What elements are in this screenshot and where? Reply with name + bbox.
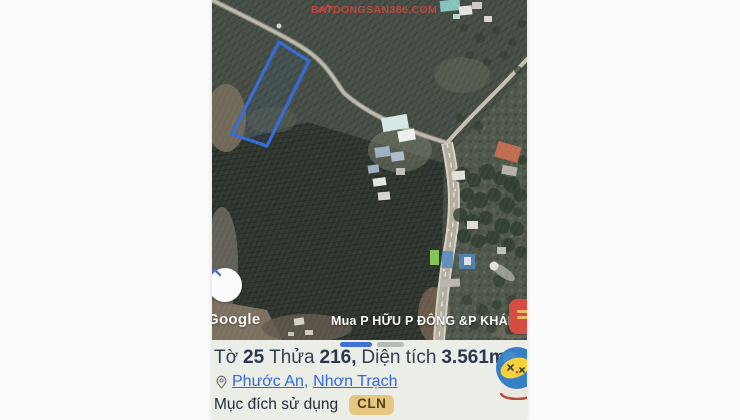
land-use-label: Mục đích sử dụng: [214, 395, 338, 414]
ward-link[interactable]: Phước An: [232, 372, 304, 392]
location-line: Phước An,Nhơn Trạch: [214, 372, 527, 392]
parcel-label: Thửa: [269, 347, 314, 368]
red-action-icon[interactable]: [509, 299, 527, 334]
house-icon: [317, 4, 333, 13]
parcel-title: Tờ25Thửa216,Diện tích3.561m²: [214, 347, 527, 370]
photo-background: BATDONGSAN386.COM Mua P HỮU P ĐÔNG &P KH…: [0, 0, 740, 420]
google-logo: Google: [212, 311, 260, 328]
sticker-ball-icon: [493, 344, 527, 400]
watermark: BATDONGSAN386.COM: [311, 4, 437, 16]
district-link[interactable]: Nhơn Trạch: [313, 372, 397, 392]
satellite-map-image: [212, 0, 527, 340]
sheet-number: 25: [243, 347, 264, 368]
sheet-label: Tờ: [214, 347, 238, 368]
land-use-line: Mục đích sử dụng CLN: [214, 395, 527, 415]
chevron-up-icon: [212, 268, 222, 277]
location-separator: ,: [304, 372, 308, 392]
app-screenshot-strip: BATDONGSAN386.COM Mua P HỮU P ĐÔNG &P KH…: [212, 0, 527, 420]
satellite-map[interactable]: BATDONGSAN386.COM Mua P HỮU P ĐÔNG &P KH…: [212, 0, 527, 340]
carousel-indicator: [340, 342, 404, 347]
land-use-badge: CLN: [349, 395, 394, 415]
area-label: Diện tích: [361, 347, 436, 368]
location-pin-icon: [216, 375, 227, 389]
parcel-number: 216,: [320, 347, 357, 368]
parcel-info-panel: Tờ25Thửa216,Diện tích3.561m² Phước An,Nh…: [212, 340, 527, 420]
carousel-dot: [377, 342, 404, 347]
map-caption: Mua P HỮU P ĐÔNG &P KHÁNH: [331, 314, 521, 328]
carousel-dot-active: [340, 342, 372, 347]
